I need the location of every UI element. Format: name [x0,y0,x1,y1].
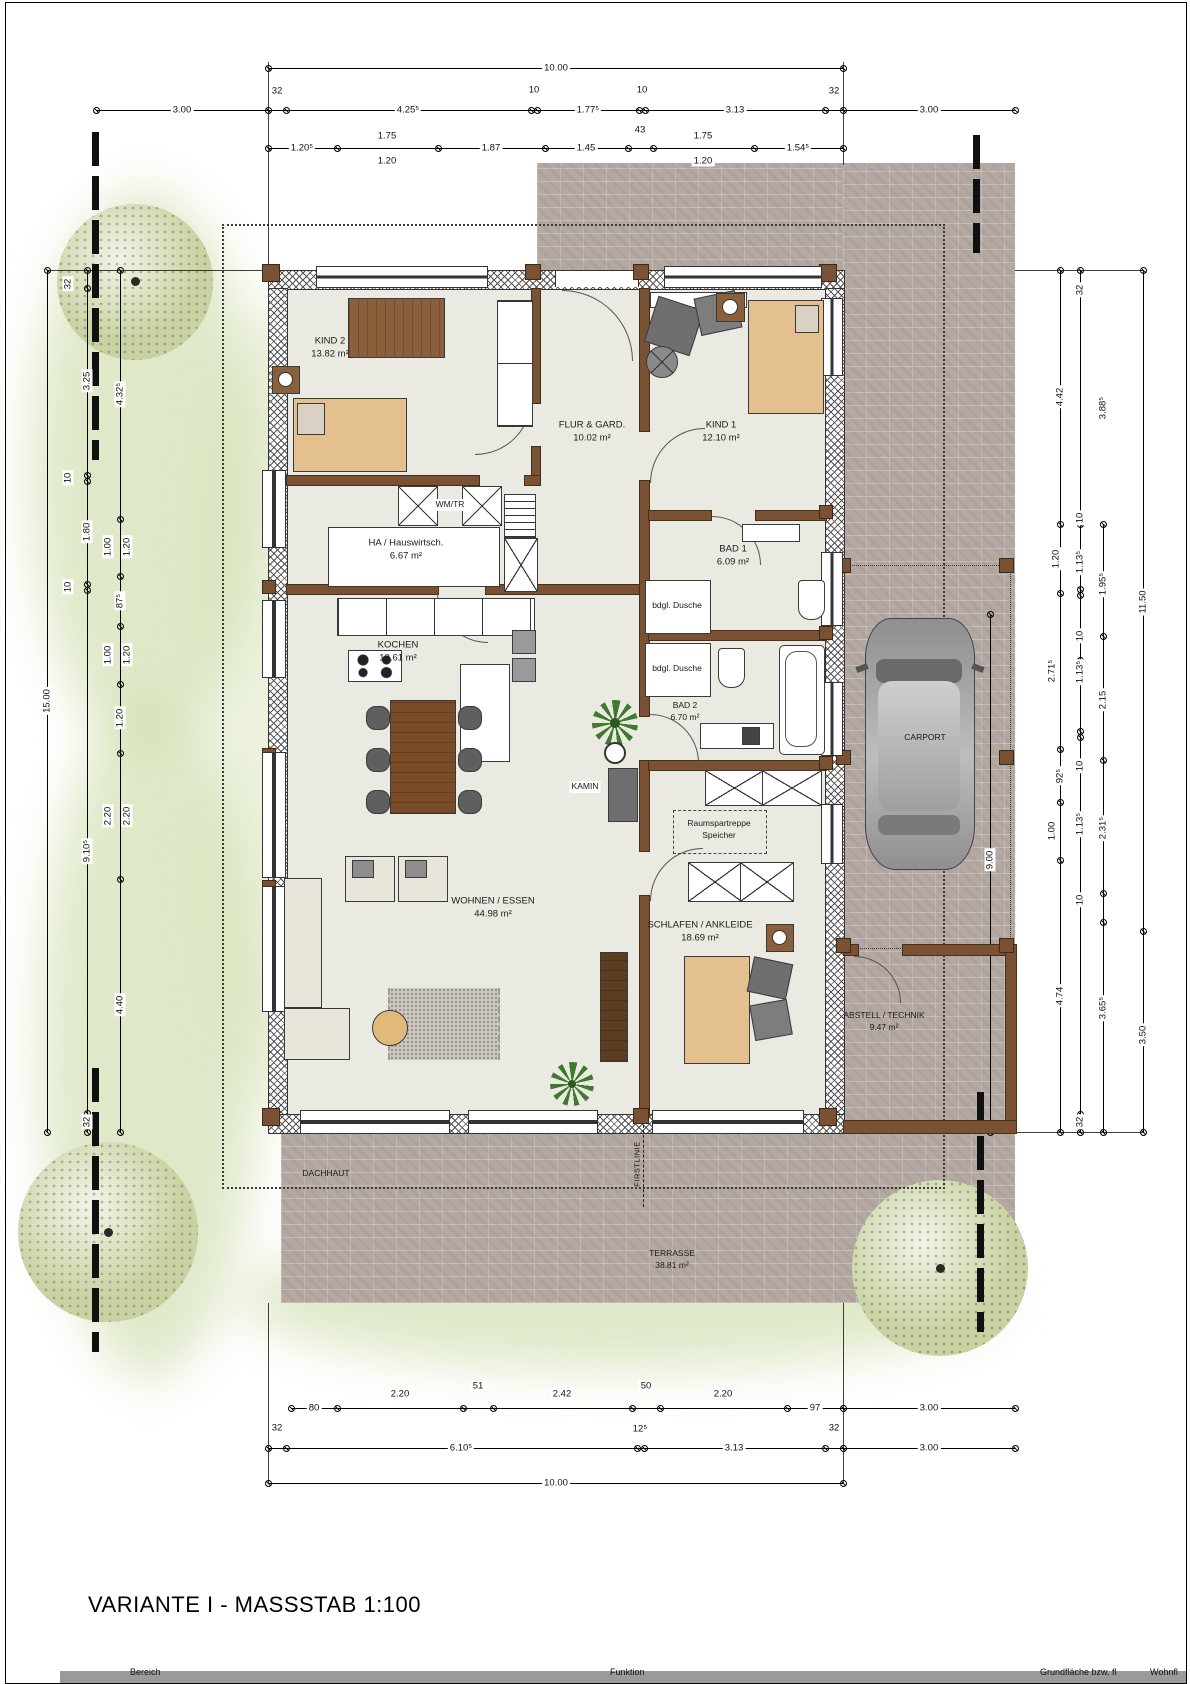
dim-tick [641,1445,648,1452]
dim-tick [650,145,657,152]
round-table [646,346,678,378]
dim-chain [1080,270,1081,1132]
window [262,600,286,678]
dim-label: 1.20 [115,707,126,730]
log-post [525,264,541,280]
dim-tick [283,107,290,114]
dim-label: 10 [1075,511,1086,526]
log-post [819,1108,837,1126]
bathtub-inner [785,651,817,747]
extension-line [268,1303,269,1483]
dim-label: 4.32⁵ [115,381,126,407]
dim-label: 6.10⁵ [448,1443,474,1454]
room-label-kind2: KIND 213.82 m² [311,335,349,362]
log-post [819,756,833,770]
dim-label: 4.42 [1055,386,1066,409]
label-dachhaut: DACHHAUT [302,1168,349,1180]
window [262,470,286,548]
dim-tick [1057,857,1064,864]
dim-label: 1.20 [692,156,715,167]
room-label-dusche1: bdgl. Dusche [652,600,702,612]
dim-label: 4.25⁵ [395,105,421,116]
dim-label: 1.13⁵ [1075,549,1086,575]
car-rear-window [878,815,960,835]
log-post [819,505,833,519]
dim-label: 15.00 [42,687,53,715]
label-terrasse: TERRASSE38.81 m² [649,1248,695,1272]
car-top-view [865,618,975,870]
dim-label: 43 [633,125,648,136]
washing-machine [398,486,438,526]
dim-label: 10 [1075,893,1086,908]
dim-label: 32 [63,277,74,292]
cushion [352,860,374,878]
window [821,298,843,376]
dim-tick [117,681,124,688]
room-label-kochen: KOCHEN10.61 m² [378,639,419,666]
dim-label: 1.20 [376,156,399,167]
dim-label: 2.71⁵ [1047,658,1058,684]
dim-label: 51 [471,1381,486,1392]
wardrobe [705,770,764,806]
dim-tick [987,611,994,618]
toilet [718,648,745,688]
tree-trunk [131,277,140,286]
dim-label: 12⁵ [631,1424,650,1435]
dim-tick [490,1405,497,1412]
wall-abstell-right [1005,944,1017,1132]
wall-kind1-bad1 [648,510,712,521]
dim-label: 32 [270,1423,285,1434]
dim-tick [1100,757,1107,764]
dim-chain [990,614,991,1132]
room-label-abstell: ABSTELL / TECHNIK9.47 m² [843,1010,924,1034]
dim-label: 3.00 [918,1443,941,1454]
room-label-bad1: BAD 16.09 m² [717,543,749,570]
pillow [795,305,819,333]
vanity [742,524,800,542]
dim-tick [1057,746,1064,753]
extension-line [843,1303,844,1483]
dim-label: 2.42 [551,1389,574,1400]
dim-label: 2.20 [712,1389,735,1400]
dim-tick [117,573,124,580]
wall-kind2-ha [286,475,480,486]
sink-unit [512,630,536,654]
extension-line [1015,1132,1143,1133]
extension-line [843,62,844,165]
dim-label: 1.77⁵ [575,105,601,116]
carport-post [836,938,851,953]
dining-table [390,700,456,814]
dim-tick [1100,919,1107,926]
dim-label: 2.20 [103,805,114,828]
hedge-line [92,132,99,460]
dim-label: 3.00 [171,105,194,116]
dim-tick [44,1129,51,1136]
dim-tick [117,750,124,757]
dim-label: 10.00 [542,1478,570,1489]
pillow [297,403,325,435]
wardrobe [688,862,742,902]
armchair [749,999,793,1041]
dim-tick [822,1445,829,1452]
dim-tick [334,1405,341,1412]
dim-tick [288,1405,295,1412]
dim-label: 3.88⁵ [1098,395,1109,421]
window-terrace-door [652,1110,804,1134]
toilet [798,580,825,620]
room-label-dusche2: bdgl. Dusche [652,663,702,675]
window [316,266,488,288]
pouf [372,1010,408,1046]
vanity [700,723,774,749]
dim-tick [625,145,632,152]
dim-tick [117,876,124,883]
dim-label: 32 [1075,1115,1086,1130]
kitchen-counter [337,598,535,636]
dim-tick [1057,590,1064,597]
dim-tick [460,1405,467,1412]
room-label-kamin: KAMIN [570,781,601,793]
dim-tick [1100,633,1107,640]
window [821,804,843,864]
wardrobe [762,770,822,806]
dim-label: 10 [1075,629,1086,644]
log-post [633,1108,649,1124]
dim-label: 32 [270,86,285,97]
dim-chain [1143,270,1144,1132]
dim-label: 1.75 [692,131,715,142]
chair [366,748,390,772]
window [262,752,286,878]
dim-chain [268,1448,1015,1449]
dim-label: 32 [82,1115,93,1130]
dim-tick [1077,734,1084,741]
dim-label: 1.54⁵ [785,143,811,154]
dim-label: 2.20 [389,1389,412,1400]
dim-tick [751,145,758,152]
dim-label: 32 [827,86,842,97]
room-label-schlafen: SCHLAFEN / ANKLEIDE18.69 m² [647,919,752,946]
chair [366,790,390,814]
dim-tick [84,1129,91,1136]
wall-abstell-bottom [843,1120,1017,1134]
dim-label: 9.00 [985,849,996,872]
sofa [284,878,322,1008]
tree-trunk [936,1264,945,1273]
tree-trunk [104,1228,113,1237]
dim-label: 1.00 [1047,820,1058,843]
dim-label: 3.00 [918,1403,941,1414]
dim-label: 9.10⁵ [82,838,93,864]
plant [592,700,638,746]
window [300,1110,450,1134]
dim-tick [534,107,541,114]
dim-tick [117,1129,124,1136]
lamp [722,299,738,315]
dim-label: 10 [635,85,650,96]
dim-tick [283,1445,290,1452]
dim-tick [822,107,829,114]
carport-post [999,938,1014,953]
car-windshield [876,659,962,683]
dim-tick [1140,928,1147,935]
chair [458,790,482,814]
dim-tick [1077,592,1084,599]
dim-tick [334,145,341,152]
dim-label: 10 [63,471,74,486]
dim-tick [784,1405,791,1412]
desk [348,298,445,358]
dim-label: 3.13 [723,1443,746,1454]
dryer [462,486,502,526]
dim-tick [93,107,100,114]
dim-label: 97 [808,1403,823,1414]
room-label-wohnen: WOHNEN / ESSEN44.98 m² [451,895,534,922]
dim-label: 1.20⁵ [289,143,315,154]
dim-label: 2.20 [122,805,133,828]
dim-tick [642,107,649,114]
window-terrace-door [468,1110,598,1134]
hedge-line [973,135,980,253]
dim-tick [629,1405,636,1412]
vase [604,742,626,764]
room-label-ha: HA / Hauswirtsch.6.67 m² [369,537,444,564]
dim-label: 2.15 [1098,689,1109,712]
dim-label: 1.45 [575,143,598,154]
room-label-bad2: BAD 26.70 m² [671,700,700,724]
dim-tick [1100,890,1107,897]
dim-label: 4.40 [115,994,126,1017]
dim-label: 80 [307,1403,322,1414]
log-post [633,264,649,280]
dim-label: 1.20 [122,644,133,667]
dim-label: 1.00 [103,644,114,667]
dim-label: 1.00 [103,536,114,559]
sofa-corner [284,1008,350,1060]
log-post [262,1108,280,1126]
cushion [405,860,427,878]
label-firstlinie: FIRSTLINIE [633,1141,642,1186]
log-post [262,264,280,282]
dim-label: 32 [827,1423,842,1434]
dim-label: 1.13⁵ [1075,811,1086,837]
dim-label: 3.65⁵ [1098,995,1109,1021]
attic-ladder [504,494,536,538]
dim-label: 50 [639,1381,654,1392]
dim-tick [435,145,442,152]
carport-post [999,558,1014,573]
hedge-line [92,1068,99,1352]
chair [366,706,390,730]
washbasin [742,727,760,745]
dim-tick [1012,107,1019,114]
dim-tick [1012,1445,1019,1452]
dim-label: 10.00 [542,63,570,74]
room-label-raumspartreppe: RaumspartreppeSpeicher [687,818,750,842]
wardrobe [740,862,794,902]
chair [458,706,482,730]
dim-label: 10 [527,85,542,96]
lamp [772,930,787,945]
window [262,886,286,1012]
dim-tick [117,516,124,523]
room-label-wmtr: WM/TR [434,499,467,511]
entrance-opening [555,271,639,287]
dim-tick [634,1445,641,1452]
dim-label: 1.20 [1051,548,1062,571]
car-roof [878,681,960,811]
wall-kind1-bad1 [755,510,827,521]
dim-label: 3.50 [1138,1024,1149,1047]
dim-tick [84,478,91,485]
dim-chain [268,148,843,149]
tv-sideboard [600,952,628,1062]
dim-label: 10 [1075,759,1086,774]
dim-label: 3.00 [918,105,941,116]
dim-tick [1100,521,1107,528]
dim-label: 1.75 [376,131,399,142]
dim-tick [1057,521,1064,528]
log-post [819,626,833,640]
floor-plan-sheet: KIND 213.82 m² FLUR & GARD.10.02 m² KIND… [0,0,1190,1684]
dim-chain [96,110,1015,111]
extension-line [1015,270,1143,271]
dim-tick [657,1405,664,1412]
fireplace [608,768,638,822]
dim-tick [1012,1405,1019,1412]
extension-line [47,270,268,271]
wall-spine [639,760,650,852]
dim-label: 4.74 [1055,985,1066,1008]
lamp [278,372,293,387]
dim-label: 1.95⁵ [1098,571,1109,597]
dim-chain [87,270,88,1132]
dim-tick [542,145,549,152]
room-label-kind1: KIND 112.10 m² [702,419,740,446]
dim-tick [84,587,91,594]
storage-box [504,538,538,592]
dim-label: 3.25 [82,370,93,393]
dim-chain [291,1408,1015,1409]
bed-schlafen [684,956,750,1064]
dim-label: 1.80 [82,521,93,544]
room-label-flur: FLUR & GARD.10.02 m² [559,419,626,446]
wall-kind2-ha [524,475,541,486]
plant [550,1062,594,1106]
chair [458,748,482,772]
log-post [262,580,276,594]
ridge-line [643,1125,644,1207]
dim-label: 2.31⁵ [1098,815,1109,841]
dim-tick [84,285,91,292]
room-label-carport: CARPORT [904,732,945,744]
window [664,266,822,288]
carport-post [999,750,1014,765]
dim-label: 10 [63,580,74,595]
dim-label: 1.87 [480,143,503,154]
dim-tick [117,623,124,630]
dim-label: 11.50 [1138,588,1149,615]
dim-label: 92⁵ [1055,767,1066,786]
dim-label: 1.20 [122,536,133,559]
dim-label: 32 [1075,283,1086,298]
wardrobe [497,300,533,427]
dim-label: 1.13⁵ [1075,659,1086,685]
dim-tick [1057,799,1064,806]
sink-unit [512,658,536,682]
dim-label: 3.13 [724,105,747,116]
dim-label: 87⁵ [115,592,126,611]
